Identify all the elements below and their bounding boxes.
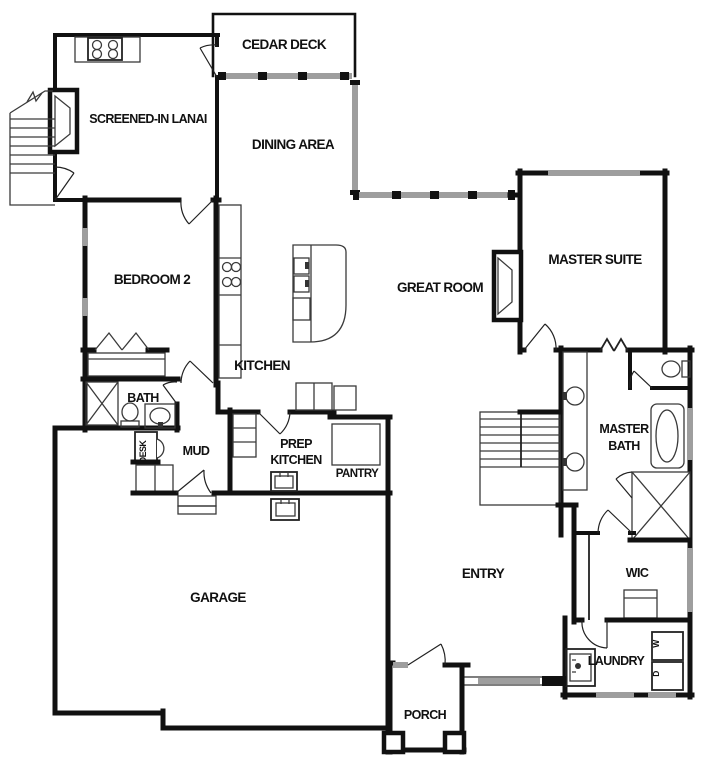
grill-burner <box>109 50 118 59</box>
dryer-label: D <box>651 671 661 677</box>
porch-column <box>445 733 464 752</box>
porch-window <box>393 662 408 668</box>
sink-faucet <box>305 280 309 287</box>
suite-door <box>524 324 556 350</box>
laundry-window <box>596 692 634 698</box>
room-label-cedar-deck: CEDAR DECK <box>242 37 327 52</box>
grill-counter <box>75 37 140 62</box>
laundry: W D LAUNDRY <box>563 618 692 698</box>
bedroom2-kitchen-door <box>181 361 213 383</box>
room-label-wic: WIC <box>626 566 649 580</box>
porch-column <box>384 733 403 752</box>
cooktop-burner <box>223 278 232 287</box>
room-label-pantry: PANTRY <box>336 468 379 480</box>
room-label-dining: DINING AREA <box>252 137 335 152</box>
suite-bath-bifold-doors <box>600 339 628 351</box>
room-label-bath: BATH <box>127 391 159 405</box>
deck-post <box>298 72 307 80</box>
stairs-treads <box>480 419 560 467</box>
wic-window <box>687 548 693 612</box>
room-label-kitchen: KITCHEN <box>234 358 290 373</box>
wic-dresser <box>624 590 657 618</box>
room-label-prep-1: PREP <box>280 437 312 451</box>
bath-window <box>687 408 693 460</box>
prep-kitchen-door <box>258 412 290 434</box>
entry-window <box>478 678 540 684</box>
garage-sink-basin <box>276 503 295 516</box>
laundry-window <box>648 692 676 698</box>
sink-faucet <box>563 458 567 466</box>
mud-room: DESK MUD <box>133 432 232 514</box>
room-label-lanai: SCREENED-IN LANAI <box>89 112 207 126</box>
prep-sink-basin <box>275 476 293 488</box>
bedroom2-window <box>82 298 88 316</box>
garage-step <box>178 496 216 506</box>
vanity-sink <box>566 387 584 405</box>
grill-burner <box>93 41 102 50</box>
kitchen: KITCHEN <box>219 205 346 378</box>
laundry-faucet <box>575 663 581 669</box>
deck-post <box>218 72 226 80</box>
front-door <box>408 644 445 665</box>
room-label-garage: GARAGE <box>190 590 246 605</box>
toilet-room-walls <box>630 352 690 388</box>
entry: ENTRY <box>462 566 566 686</box>
lanai-fireplace <box>50 90 77 152</box>
sink-faucet <box>158 422 163 427</box>
room-label-laundry: LAUNDRY <box>588 654 646 668</box>
floor-plan: SCREENED-IN LANAI CEDAR DECK DINING AREA… <box>0 0 701 768</box>
room-label-bedroom2: BEDROOM 2 <box>114 272 190 287</box>
linen-closet-x <box>86 382 118 425</box>
window-mullion <box>392 191 401 199</box>
dining-area: DINING AREA <box>252 80 360 195</box>
deck-post <box>258 72 267 80</box>
cooktop-burner <box>223 263 232 272</box>
mud-garage-door <box>176 470 211 493</box>
wic-door <box>598 510 632 533</box>
toilet-room-door <box>630 371 652 388</box>
laundry-door <box>582 620 607 648</box>
lanai-deck-door <box>200 45 217 77</box>
suite-window <box>548 170 640 176</box>
bathtub-basin <box>656 410 678 462</box>
toilet <box>662 361 680 377</box>
grill-burner <box>109 41 118 50</box>
cooktop-burner <box>232 278 241 287</box>
pantry: PANTRY <box>330 417 390 497</box>
grill-burner <box>93 50 102 59</box>
closet-bifold-doors <box>95 333 149 350</box>
desk-chair <box>157 439 164 458</box>
garage-step <box>178 506 216 514</box>
kitchen-counter <box>219 205 241 378</box>
bath: BATH <box>55 382 178 430</box>
window-mullion <box>430 191 439 199</box>
window-cap <box>350 80 360 85</box>
bath-toilet <box>122 403 138 421</box>
pantry-shelves <box>332 424 380 465</box>
kitchen-island <box>293 245 346 342</box>
porch: PORCH <box>384 644 468 752</box>
shower-door <box>616 472 632 498</box>
entry-wall-stub <box>542 676 566 686</box>
bedroom2-door <box>181 200 213 224</box>
lanai-exterior-door <box>55 167 74 200</box>
deck-door-window <box>220 73 352 79</box>
bath-sink <box>150 408 170 424</box>
room-label-porch: PORCH <box>404 708 447 722</box>
room-label-master-bath-1: MASTER <box>599 422 649 436</box>
room-label-master-suite: MASTER SUITE <box>548 252 642 267</box>
bedroom2-window <box>82 228 88 246</box>
cooktop-burner <box>232 263 241 272</box>
deck-post <box>340 72 349 80</box>
room-label-prep-2: KITCHEN <box>270 453 322 467</box>
room-label-master-bath-2: BATH <box>608 439 640 453</box>
window-mullion <box>468 191 477 199</box>
bath-door <box>163 382 177 404</box>
dining-window <box>352 84 358 192</box>
window-cap <box>353 190 359 200</box>
floor-plan-svg: SCREENED-IN LANAI CEDAR DECK DINING AREA… <box>0 0 701 768</box>
room-label-entry: ENTRY <box>462 566 505 581</box>
vanity-sink <box>566 453 584 471</box>
master-suite: MASTER SUITE <box>494 170 692 352</box>
room-label-mud: MUD <box>183 444 210 458</box>
sink-faucet <box>305 262 309 269</box>
prep-counter-divisions <box>233 428 256 442</box>
prep-counter <box>233 414 256 457</box>
vanity-counter <box>563 352 587 490</box>
closet <box>88 353 165 376</box>
master-bath: MASTER BATH <box>561 348 693 697</box>
sink-faucet <box>563 392 567 400</box>
screened-in-lanai: SCREENED-IN LANAI <box>10 35 218 205</box>
appliance <box>334 386 356 410</box>
room-label-great-room: GREAT ROOM <box>397 280 483 295</box>
